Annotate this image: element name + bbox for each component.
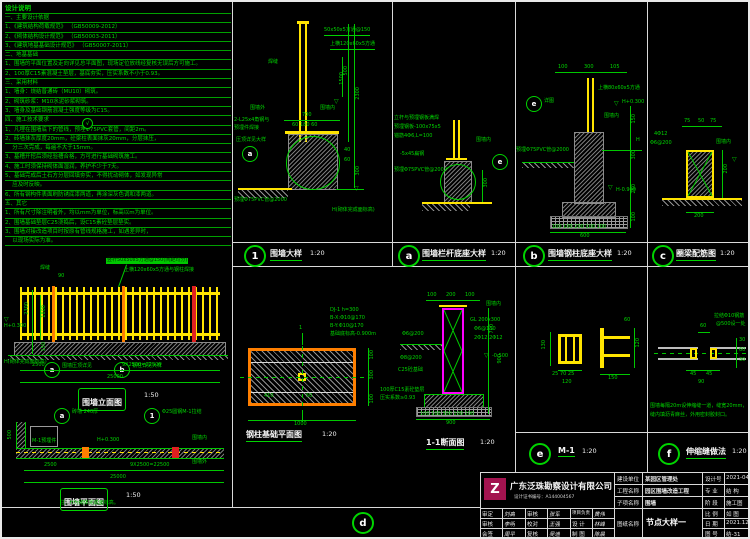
note-line: 1、所有尺寸除注明者外，均以mm为单位，标高以m为单位。 (5, 209, 231, 218)
dim-label: 100 (465, 293, 475, 299)
rebar-x (686, 150, 714, 198)
dim-line (284, 120, 340, 121)
dim-label: 300 (370, 370, 376, 380)
dim-line (722, 150, 723, 198)
anchor-leg (604, 336, 630, 339)
column-cap (439, 305, 467, 307)
tb-label: 日 期 (705, 520, 718, 528)
weld-label: 焊缝 (268, 60, 278, 66)
detail-circle (440, 164, 476, 200)
annotation: -5x45扁钢 (400, 152, 424, 158)
side-label: 围墙外 (192, 460, 207, 466)
approval-circle-icon: √ (82, 118, 93, 129)
dim-label: 90 (698, 380, 704, 386)
sign-value: 张军 (549, 510, 560, 518)
dim-label: 300 (584, 65, 594, 71)
sign-label: 制 图 (572, 530, 585, 538)
tb-line (525, 508, 526, 539)
tb-label: 设计号 (705, 475, 722, 483)
embed-tag: M-1预埋件 (30, 426, 58, 447)
dim-label: 100 100 300 100 100 (420, 412, 474, 418)
dim-label: 9X2500=22500 (122, 363, 161, 369)
footing-note: B-X:Φ10@170 (330, 316, 365, 322)
detail-bubble: c (652, 245, 674, 267)
tb-line (614, 496, 750, 497)
pvc-label: 预埋Φ75PVC管@2000 (394, 168, 447, 174)
company-cert: 设计证书编号：A144004567 (514, 494, 574, 500)
annotation: 拉结Φ10钢筋 (714, 314, 744, 320)
anchor-leg (604, 354, 630, 357)
sign-label: 项目负责 (572, 510, 590, 516)
dim-label: 500 (8, 430, 14, 440)
dim-label: 200 (694, 214, 704, 220)
dim-line (24, 482, 224, 483)
note-line: 6、所有钢构件表面刷防锈底漆两道，再涂深灰色调和漆两道。 (5, 191, 231, 200)
dim-label: 60 (624, 318, 630, 324)
dim-label: 30 (739, 338, 745, 344)
dim-label: 100 (370, 394, 376, 404)
sign-value: 刘高 (504, 510, 515, 518)
side-label: 围墙内 (320, 106, 335, 112)
dim-line (736, 338, 737, 368)
divider (232, 2, 233, 507)
sign-value: 周平 (504, 530, 515, 538)
annotation: 上横120x60x5方通 (330, 42, 375, 50)
divider (232, 242, 750, 243)
tb-line (702, 528, 750, 529)
dim-line (698, 332, 710, 333)
note-line: 1、墙身：烧结普通砖（MU10）砌筑。 (5, 88, 231, 97)
rebar-note: C25砼基础 (398, 368, 423, 374)
detail-title: 围墙栏杆底座大样 (422, 248, 486, 261)
level-label: H+0.300 (622, 100, 644, 106)
detail-bubble: a (398, 245, 420, 267)
tb-line (614, 484, 750, 485)
divider (515, 432, 750, 433)
ground-hatch (662, 200, 742, 206)
plan-wall-centerline (16, 452, 224, 453)
steel-post (592, 78, 594, 132)
pier-cap (285, 131, 339, 134)
rebar-label: Φ6@200 (650, 141, 672, 147)
ground-hatch (238, 190, 288, 198)
steel-post (587, 78, 589, 132)
tb-line (702, 518, 750, 519)
tb-label: 工程名称 (617, 487, 639, 495)
side-label: 围墙内 (716, 140, 731, 146)
dim-label: 25000 (110, 475, 126, 481)
dim-label: 60 180 60 (292, 123, 317, 129)
note-line: 4、施工时须保持砌体面湿润，养护不少于7天。 (5, 163, 231, 172)
dim-line (682, 126, 722, 127)
footing-section (424, 394, 484, 408)
dim-line (550, 332, 551, 366)
level-label: H+0.300 (4, 324, 26, 330)
plan-post (82, 447, 89, 458)
sign-value: 李明 (504, 520, 515, 528)
dim-line (24, 470, 224, 471)
tb-line (570, 508, 571, 539)
dim-label: 410 (264, 394, 274, 400)
dim-label: 200 (724, 164, 730, 174)
detail-bubble: f (658, 443, 680, 465)
detail-title: 围墙钢柱底座大样 (548, 248, 612, 261)
fence-post-expansion (192, 286, 196, 342)
tb-line (614, 472, 615, 539)
dim-label: 100 (632, 212, 638, 222)
dim-label: 2300 (25, 302, 31, 315)
detail-marker: e (492, 154, 508, 170)
note-line: 2、《砌体结构设计规范》 （GB50003-2011） (5, 33, 231, 42)
view-scale: 1:20 (322, 430, 337, 438)
tb-value: 如 图 (726, 510, 739, 518)
ground-hatch (522, 163, 574, 168)
note-line: 分三次完成，每遍不大于15mm。 (5, 144, 231, 153)
dim-line (630, 106, 631, 228)
view-scale: 1:50 (126, 491, 141, 499)
marker-label: 围墙压顶详见 (62, 364, 92, 370)
detail-title: 圈梁配筋图 (676, 248, 716, 261)
title-block: Z 广东泛珠勘察设计有限公司 设计证书编号：A144004567 建设单位 某园… (480, 472, 750, 539)
detail-title: 伸缩缝做法 (686, 446, 726, 459)
footing-note: DJ-1 h=300 (330, 308, 359, 314)
dim-label: 700 (490, 324, 496, 334)
dim-label: 600 (580, 234, 590, 240)
note-line: 3、基槽开挖后须经验槽合格，方可进行基础砌筑施工。 (5, 153, 231, 162)
anchor-label: 2-L25x4角钢与 (234, 118, 269, 124)
sign-value: 林峰 (594, 520, 605, 528)
tb-line (502, 508, 503, 539)
tb-value: 围墙 (645, 499, 656, 507)
note-line: 2、100厚C15素混凝土垫层，基底夯实，压实系数不小于0.93。 (5, 70, 231, 79)
dim-line (20, 370, 220, 371)
dim-label: 50 (698, 119, 704, 125)
detail-marker: a (54, 408, 70, 424)
detail-title: M-1 (558, 446, 575, 457)
tb-value: 园区围墙改造工程 (645, 487, 689, 495)
anchor-plate (600, 328, 604, 368)
note-line: 3、围墙对接改造项目时按原有管线规格施工，如遇差异时， (5, 228, 231, 237)
tb-value: 2021.12 (726, 520, 749, 526)
centerline (302, 342, 303, 414)
detail-marker: e (526, 96, 542, 112)
dim-line (348, 24, 349, 142)
dim-label: 9X2500=22500 (130, 463, 169, 469)
dim-label: 250 (632, 184, 638, 194)
view-title: 1-1断面图 (426, 437, 464, 450)
marker-label: 砖墙 240厚 (72, 410, 98, 416)
dim-label: 40 (344, 148, 350, 154)
design-notes: 设计说明 一、主要设计依据 1、《建筑结构荷载规范》 （GB50009-2012… (5, 4, 231, 246)
note-line: 以现场实际为准。 (5, 237, 231, 246)
tb-label: 建设单位 (617, 475, 639, 483)
tb-label: 子项名称 (617, 499, 639, 507)
note-line: 三、采用材料 (5, 79, 231, 88)
tb-value: 结 构 (726, 487, 739, 495)
note-line: 四、施工技术要求 (5, 116, 231, 125)
dim-label: 300 (484, 178, 490, 188)
sign-value: 陈晨 (594, 530, 605, 538)
marker-label: 详图 (544, 99, 554, 105)
dim-label: 30 (739, 358, 745, 364)
annotation: 预埋钢板-100x75x5 (394, 125, 441, 131)
note-line: 1、《建筑结构荷载规范》 （GB50009-2012） (5, 23, 231, 32)
tb-label: 阶 段 (705, 499, 718, 507)
fence-top-rail (20, 292, 220, 295)
side-label: 围墙外 (250, 106, 265, 112)
plate-inner-line (573, 336, 575, 362)
sign-label: 会签 (482, 530, 493, 538)
beam-note: GL 200x300 (470, 318, 500, 324)
sign-label: 校对 (527, 520, 538, 528)
dim-label: 100 (370, 350, 376, 360)
anchor-label: 预埋件焊接 (234, 126, 259, 132)
dim-label: 120 (562, 380, 572, 386)
tag-label: M-1预埋件 (32, 438, 56, 444)
plan-wall-return (16, 422, 26, 448)
dim-label: 300 (356, 166, 362, 176)
dim-line (426, 300, 480, 301)
tb-label: 图 号 (705, 530, 718, 538)
note-line: 2、围墙基础垫层C25浇捣后，设C15素砼垫层垫实。 (5, 219, 231, 228)
dim-label: 100 (558, 65, 568, 71)
angle-label: 90 (58, 274, 64, 280)
dim-line (354, 24, 355, 188)
note-line: 3、《建筑地基基础设计规范》 （GB50007-2011） (5, 42, 231, 51)
footing-note: B-Y:Φ10@170 (330, 324, 364, 330)
dim-label: 45 (690, 372, 696, 378)
ground-hatch (400, 345, 442, 350)
dim-label: 100 (427, 293, 437, 299)
dim-label: 120 (636, 338, 642, 348)
dim-label: 1000 (294, 422, 307, 428)
sign-value: 王强 (549, 520, 560, 528)
level-symbol: ▽ (354, 185, 359, 192)
dim-label: 2300 (356, 87, 362, 100)
dim-label: 75 (684, 119, 690, 125)
dim-label: 1500 (340, 72, 346, 85)
level-symbol: ▽ (4, 316, 9, 323)
dim-line (555, 72, 627, 73)
elevation-annotation: 上横120x60x5方通与钢柱焊接 (124, 268, 194, 274)
dim-label: 75 (710, 119, 716, 125)
dim-label: 100 100 200 100 100 (552, 225, 606, 231)
side-label: 围墙内 (192, 436, 207, 442)
dim-label: 200 (446, 293, 456, 299)
base-plate (446, 158, 467, 160)
cut-mark: 1 (299, 326, 302, 332)
divider (232, 266, 750, 267)
dim-label: 60 (344, 158, 350, 164)
notes-title: 设计说明 (5, 4, 231, 14)
divider (515, 2, 516, 472)
level-label: H(砌体完成面标高) (332, 208, 375, 214)
detail-bubble: 1 (244, 245, 266, 267)
note-line: 1、凡埋在围墙底下的管线，预埋Φ75PVC套管，间距2m。 (5, 126, 231, 135)
detail-title: 围墙大样 (270, 248, 302, 261)
side-label: 围墙内 (486, 302, 501, 308)
rail-post (453, 120, 455, 160)
level-label: H (636, 138, 640, 144)
plate-inner-line (565, 336, 567, 362)
company-name: 广东泛珠勘察设计有限公司 (510, 480, 612, 492)
fence-post (122, 286, 125, 342)
dim-label: 130 (542, 340, 548, 350)
post-cap (297, 21, 309, 24)
joint-note: 缝内填沥青麻丝，外用密封胶封口。 (650, 413, 730, 419)
detail-marker: a (242, 146, 258, 162)
annotation: 立杆与预埋钢板满焊 (394, 116, 439, 122)
sheet-name: 节点大样一 (646, 517, 686, 528)
marker-label: 压顶详见大样 (236, 138, 266, 144)
sign-value: 黄伟 (594, 510, 605, 518)
detail-scale: 1:20 (310, 249, 325, 257)
dim-label: 150 (608, 376, 618, 382)
dim-line (32, 290, 33, 354)
dim-label: 2500 (44, 463, 57, 469)
side-label: 围墙内 (476, 138, 491, 144)
sign-label: 设 计 (572, 520, 585, 528)
ground-line (336, 189, 364, 190)
joint-tube (710, 348, 717, 359)
detail-circle (286, 136, 340, 190)
tb-value: 结-31 (726, 530, 740, 538)
divider (392, 2, 393, 266)
detail-scale: 1:20 (720, 249, 735, 257)
tb-label: 比 例 (705, 510, 718, 518)
detail-scale: 1:20 (617, 249, 632, 257)
company-logo: Z (484, 478, 506, 500)
dim-label: 25 70 25 (552, 372, 574, 378)
dim-label: 1800 (42, 305, 48, 318)
tb-line (592, 508, 593, 539)
note-line: 3、墙身及基础钢筋混凝土强度等级为C15。 (5, 107, 231, 116)
detail-scale: 1:20 (491, 249, 506, 257)
note-line: 2、砌筑砂浆：M10水泥砂浆砌筑。 (5, 98, 231, 107)
sheet-name-label: 图纸名称 (617, 520, 639, 528)
fence-post (52, 286, 55, 342)
detail-scale: 1:20 (582, 447, 597, 455)
cad-drawing-sheet: 设计说明 一、主要设计依据 1、《建筑结构荷载规范》 （GB50009-2012… (0, 0, 750, 539)
blinding-note: 100厚C15素砼垫层 (380, 388, 424, 394)
note-line: 1、围墙的平面位置及走向详见总平面图，现场定位放线经复核无误后方可施工。 (5, 60, 231, 69)
level-symbol: ▽ (608, 184, 613, 191)
dim-label: 900 (446, 421, 456, 427)
concrete-pier (574, 132, 604, 204)
sign-label: 审核 (482, 520, 493, 528)
plan-note: 注：H为砌体完成面标高。 (60, 501, 119, 507)
annotation: @500设一处 (716, 322, 746, 328)
dim-label: 700 (302, 113, 312, 119)
column-bracing (444, 310, 462, 392)
note-line: 5、基础完成后土石方分层回填夯实，不得扰动砌体，如发现异常 (5, 172, 231, 181)
note-line: 二、地基基础 (5, 51, 231, 60)
dim-label: 60 (700, 324, 706, 330)
plan-wall-band (16, 448, 224, 459)
pvc-label: 预埋Φ75PVC管@2000 (234, 198, 287, 204)
view-title: 围墙立面图 (82, 398, 122, 407)
tb-line (480, 508, 750, 509)
dim-line (634, 328, 635, 368)
view-title: 钢柱基础平面图 (246, 429, 302, 442)
note-line: 应及时反映。 (5, 181, 231, 190)
view-scale: 1:50 (144, 391, 159, 399)
note-line: 一、主要设计依据 (5, 14, 231, 23)
tb-value: 某园区管理处 (645, 475, 678, 483)
rebar-label: 4Φ12 (654, 132, 667, 138)
rebar-note: Φ6@200 (402, 332, 424, 338)
annotation: 上横80x60x5方通 (598, 86, 640, 92)
weld-label: 焊缝 (40, 266, 50, 272)
tb-label: 专 业 (705, 487, 718, 495)
marker-label: Φ25圆钢M-1拉结 (162, 410, 202, 416)
rebar-note: Φ8@200 (400, 356, 422, 362)
elevation-annotation: 竖杆50x50x5方通@150(间距均分) (106, 258, 188, 264)
ground-hatch (422, 204, 470, 211)
level-symbol: ▽ (732, 156, 737, 163)
divider (647, 2, 648, 472)
plan-post (172, 447, 179, 458)
level-symbol: ▽ (334, 98, 339, 105)
rail-post (458, 120, 460, 160)
dim-label: 300 (632, 150, 638, 160)
footing-note: 基础底标高-0.900m (330, 332, 376, 338)
sign-label: 审核 (527, 510, 538, 518)
elevation-title: 围墙立面图 (78, 388, 126, 411)
joint-tube (690, 348, 697, 359)
tb-line (642, 472, 643, 539)
leader-line (118, 265, 127, 288)
pvc-label: 预埋Φ75PVC管@2000 (516, 148, 569, 154)
level-symbol: ▽ (614, 100, 619, 107)
dim-label: 50 (306, 394, 312, 400)
annotation: 锚筋4Φ6,L=100 (394, 134, 432, 140)
tb-value: 施工图 (726, 499, 743, 507)
view-scale: 1:20 (480, 438, 495, 446)
tb-value: 2021-046 (726, 475, 750, 481)
dim-label: 2500 (32, 363, 45, 369)
detail-bubble: d (352, 512, 374, 534)
dim-label: 150 (632, 114, 638, 124)
detail-bubble: e (529, 443, 551, 465)
tb-line (547, 508, 548, 539)
sign-label: 审定 (482, 510, 493, 518)
dim-line (20, 382, 220, 383)
detail-marker: 1 (144, 408, 160, 424)
side-label: 围墙内 (604, 114, 619, 120)
sign-value: 吴迪 (549, 530, 560, 538)
detail-scale: 1:20 (732, 447, 747, 455)
note-line: 五、其它 (5, 200, 231, 209)
note-line: 2、砖墙抹灰厚度20mm，砼梁柱表面抹灰20mm，分层抹压， (5, 135, 231, 144)
joint-note: 围墙每隔20m设伸缩缝一道，缝宽20mm， (650, 404, 747, 410)
dim-label: 105 (610, 65, 620, 71)
dim-label: 60 (739, 348, 745, 354)
sign-label: 复核 (527, 530, 538, 538)
blinding-note: 压实系数≥0.93 (380, 396, 415, 402)
level-label: H+0.300 (97, 438, 119, 444)
dim-label: 900 (498, 354, 504, 364)
detail-bubble: b (523, 245, 545, 267)
dim-label: 45 (706, 372, 712, 378)
embed-plate (558, 334, 582, 364)
fence-bottom-rail (20, 333, 220, 336)
dim-label: 150 (42, 342, 48, 352)
dim-label: 25000 (107, 375, 123, 381)
